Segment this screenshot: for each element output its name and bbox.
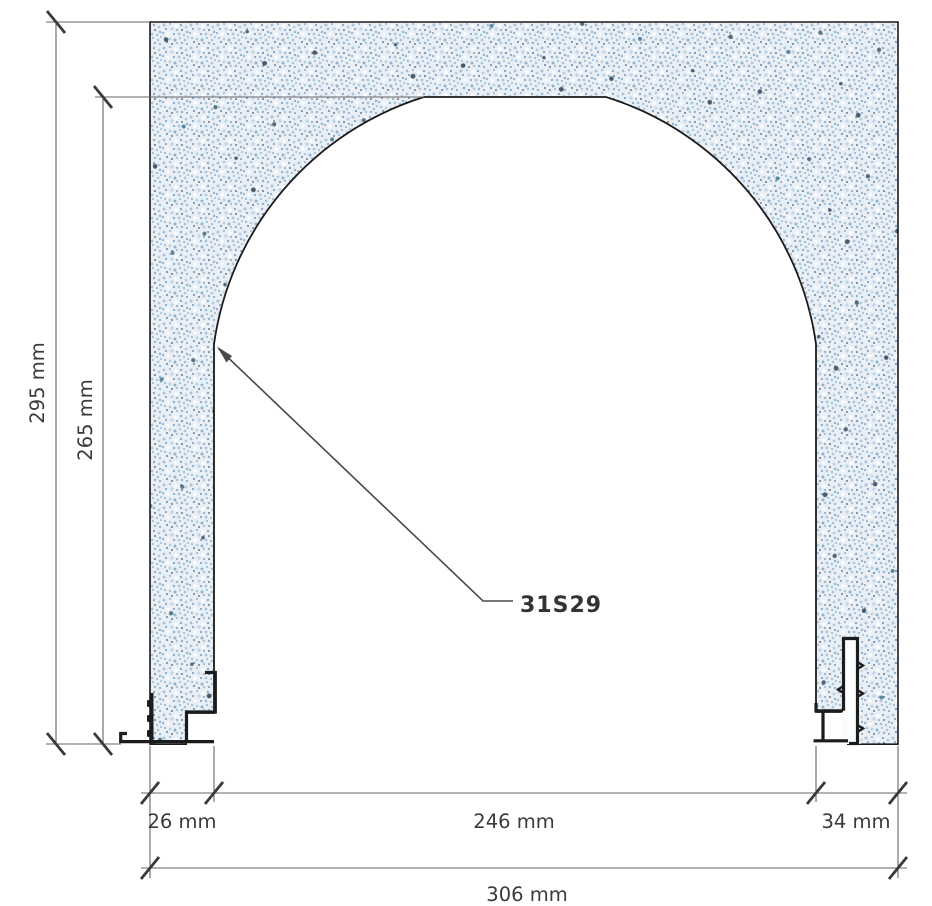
technical-drawing-canvas: 295 mm 265 mm 26 mm 246 mm 34 mm 306 mm … [0,0,932,906]
dim-label-total-width: 306 mm [486,883,567,906]
leader-line [217,347,513,602]
dim-label-opening-width: 246 mm [473,810,554,833]
dim-label-opening-height: 265 mm [74,379,97,460]
dim-label-total-height: 295 mm [26,342,49,423]
dim-label-left-jamb-width: 26 mm [147,810,216,833]
left-edge-strip-clips [147,700,152,737]
dim-label-right-jamb-width: 34 mm [821,810,890,833]
wall-section [150,22,898,745]
arched-opening-edge [186,97,848,745]
system-reference-label: 31S29 [520,593,602,618]
technical-drawing: 295 mm 265 mm 26 mm 246 mm 34 mm 306 mm … [0,0,932,906]
